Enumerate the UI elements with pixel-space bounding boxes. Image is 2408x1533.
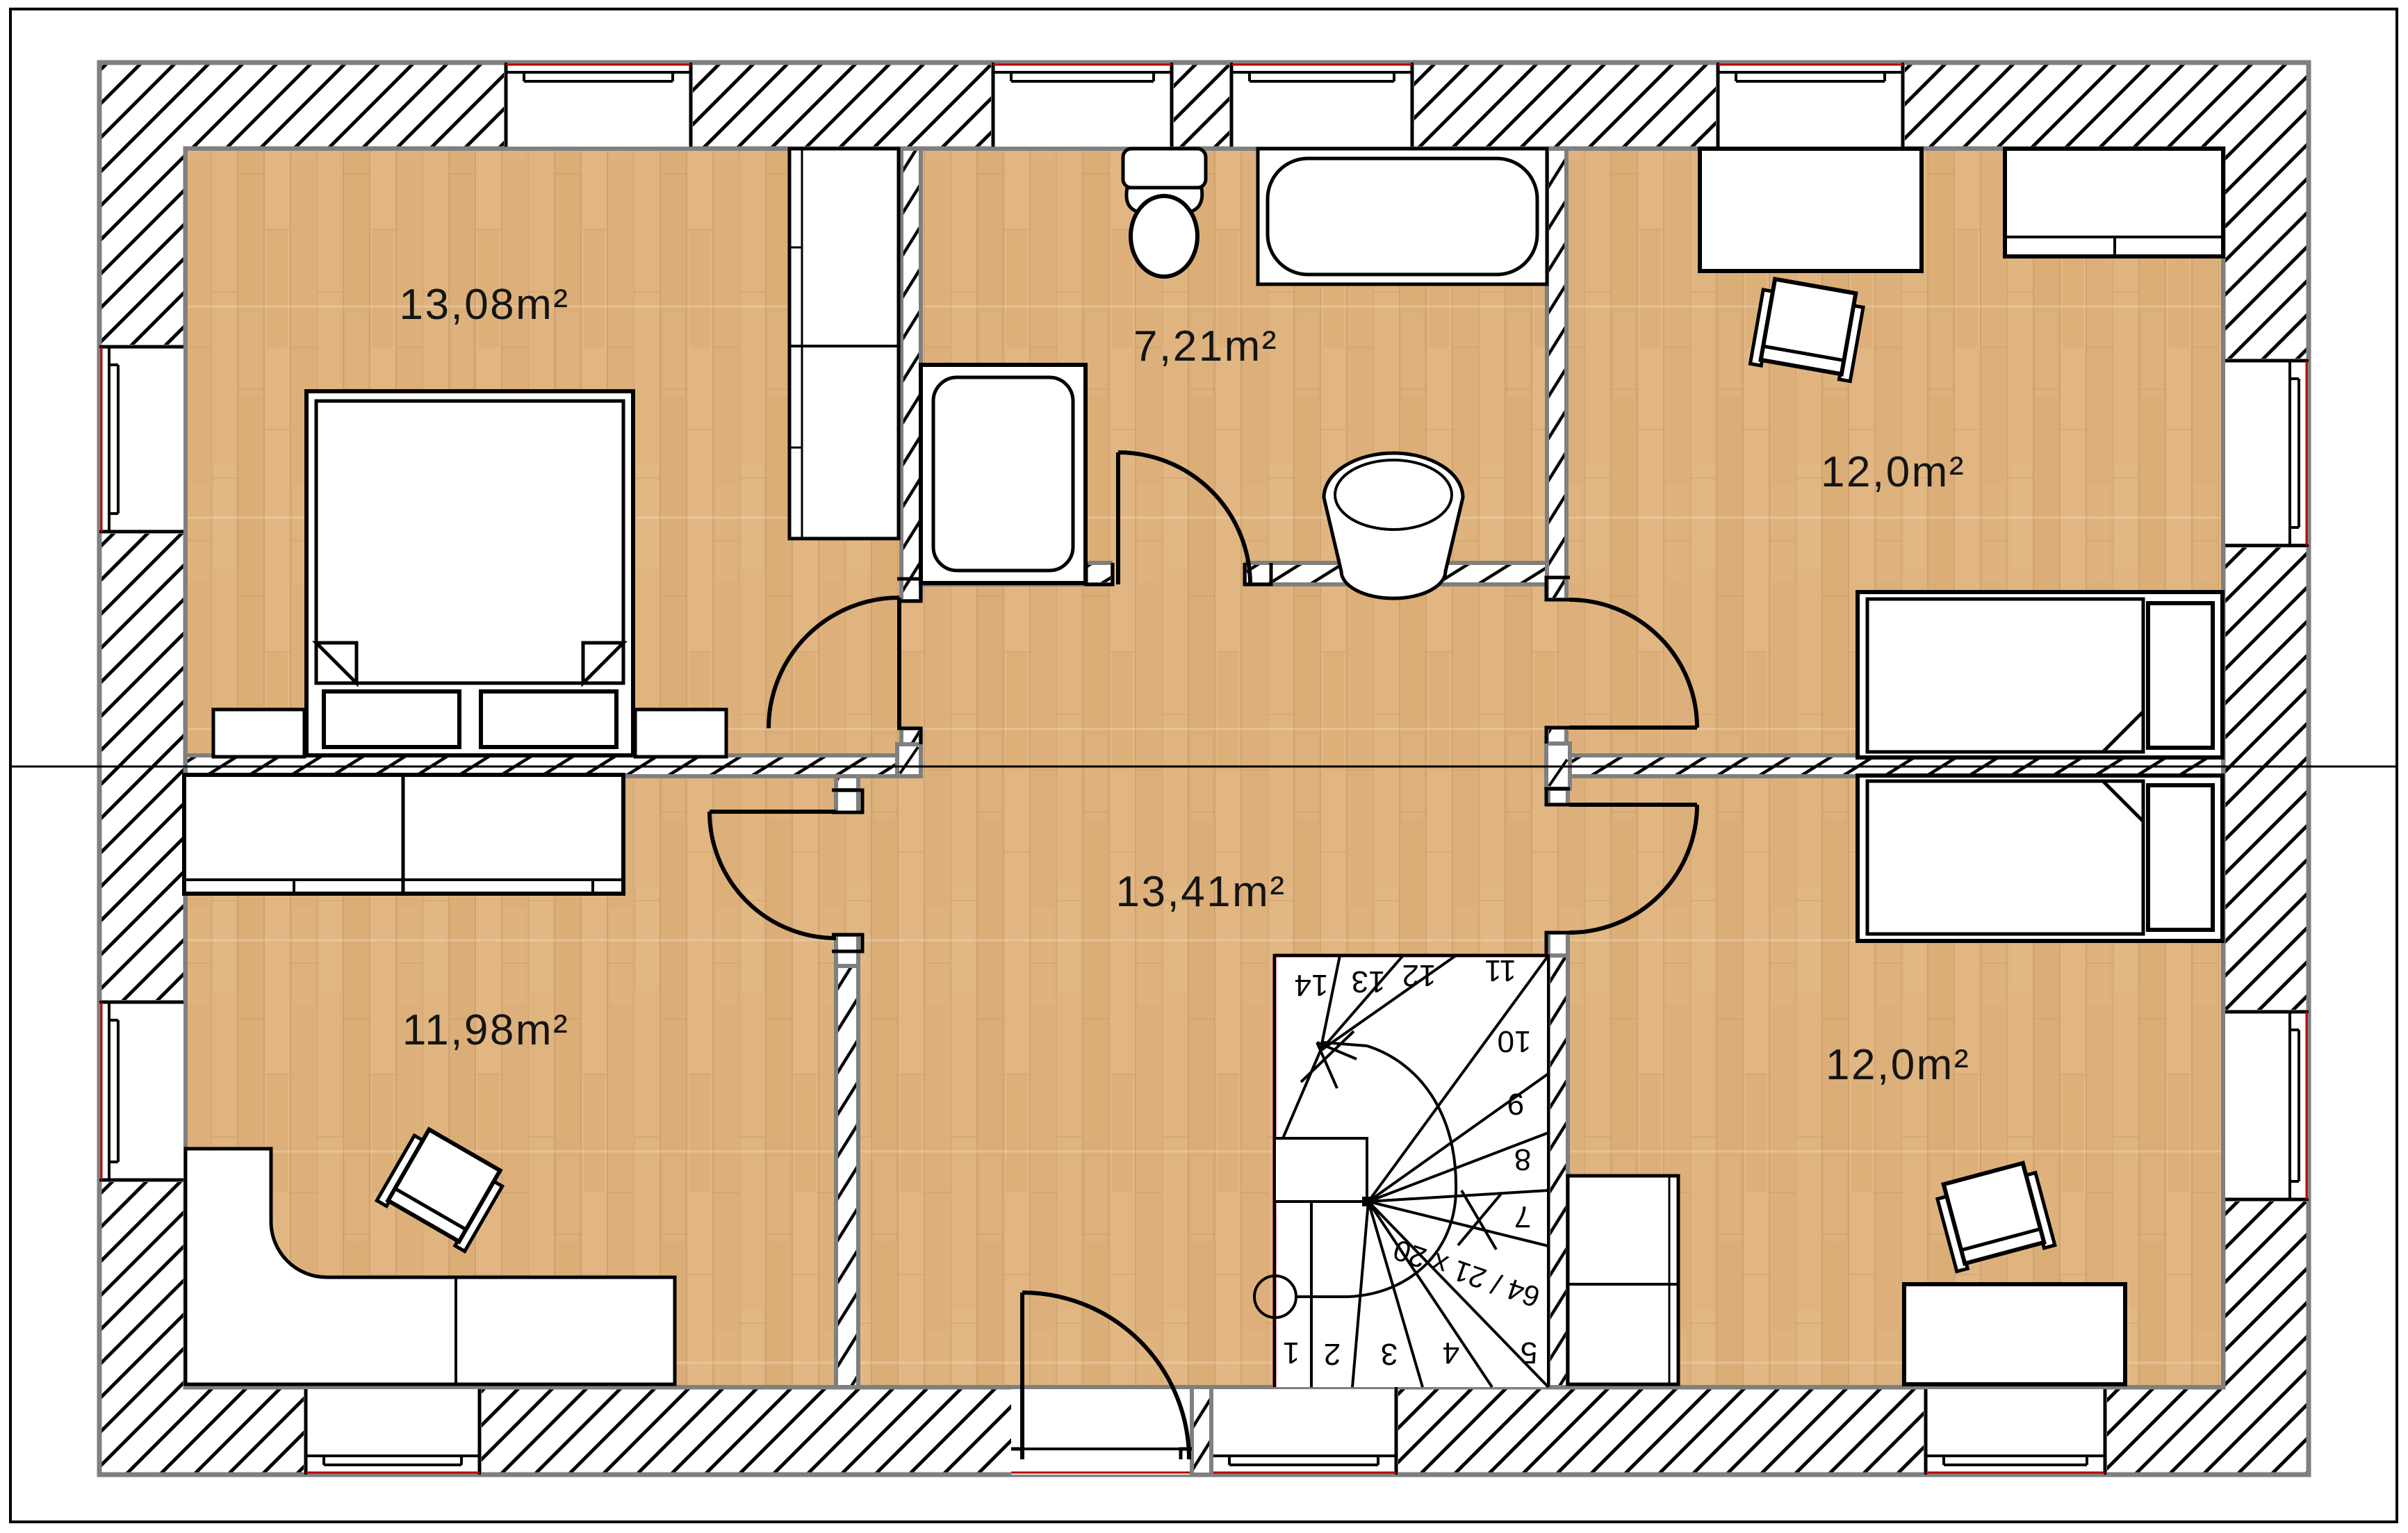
svg-text:1: 1: [1283, 1336, 1300, 1370]
svg-text:8: 8: [1514, 1142, 1531, 1177]
svg-text:13,41m²: 13,41m²: [1116, 868, 1286, 916]
svg-text:9: 9: [1507, 1087, 1524, 1121]
svg-text:13,08m²: 13,08m²: [400, 281, 570, 329]
svg-text:14: 14: [1295, 968, 1329, 1002]
svg-text:12,0m²: 12,0m²: [1826, 1041, 1970, 1089]
svg-text:10: 10: [1498, 1024, 1532, 1058]
svg-text:11: 11: [1484, 953, 1516, 987]
svg-text:5: 5: [1521, 1336, 1537, 1370]
svg-text:2: 2: [1324, 1337, 1341, 1371]
svg-text:12,0m²: 12,0m²: [1821, 448, 1965, 496]
svg-text:7: 7: [1514, 1199, 1531, 1233]
svg-text:11,98m²: 11,98m²: [402, 1006, 569, 1054]
svg-text:12: 12: [1402, 958, 1436, 992]
svg-text:13: 13: [1352, 965, 1386, 999]
svg-text:3: 3: [1381, 1337, 1398, 1371]
svg-text:7,21m²: 7,21m²: [1133, 322, 1278, 370]
svg-text:4: 4: [1443, 1336, 1459, 1370]
